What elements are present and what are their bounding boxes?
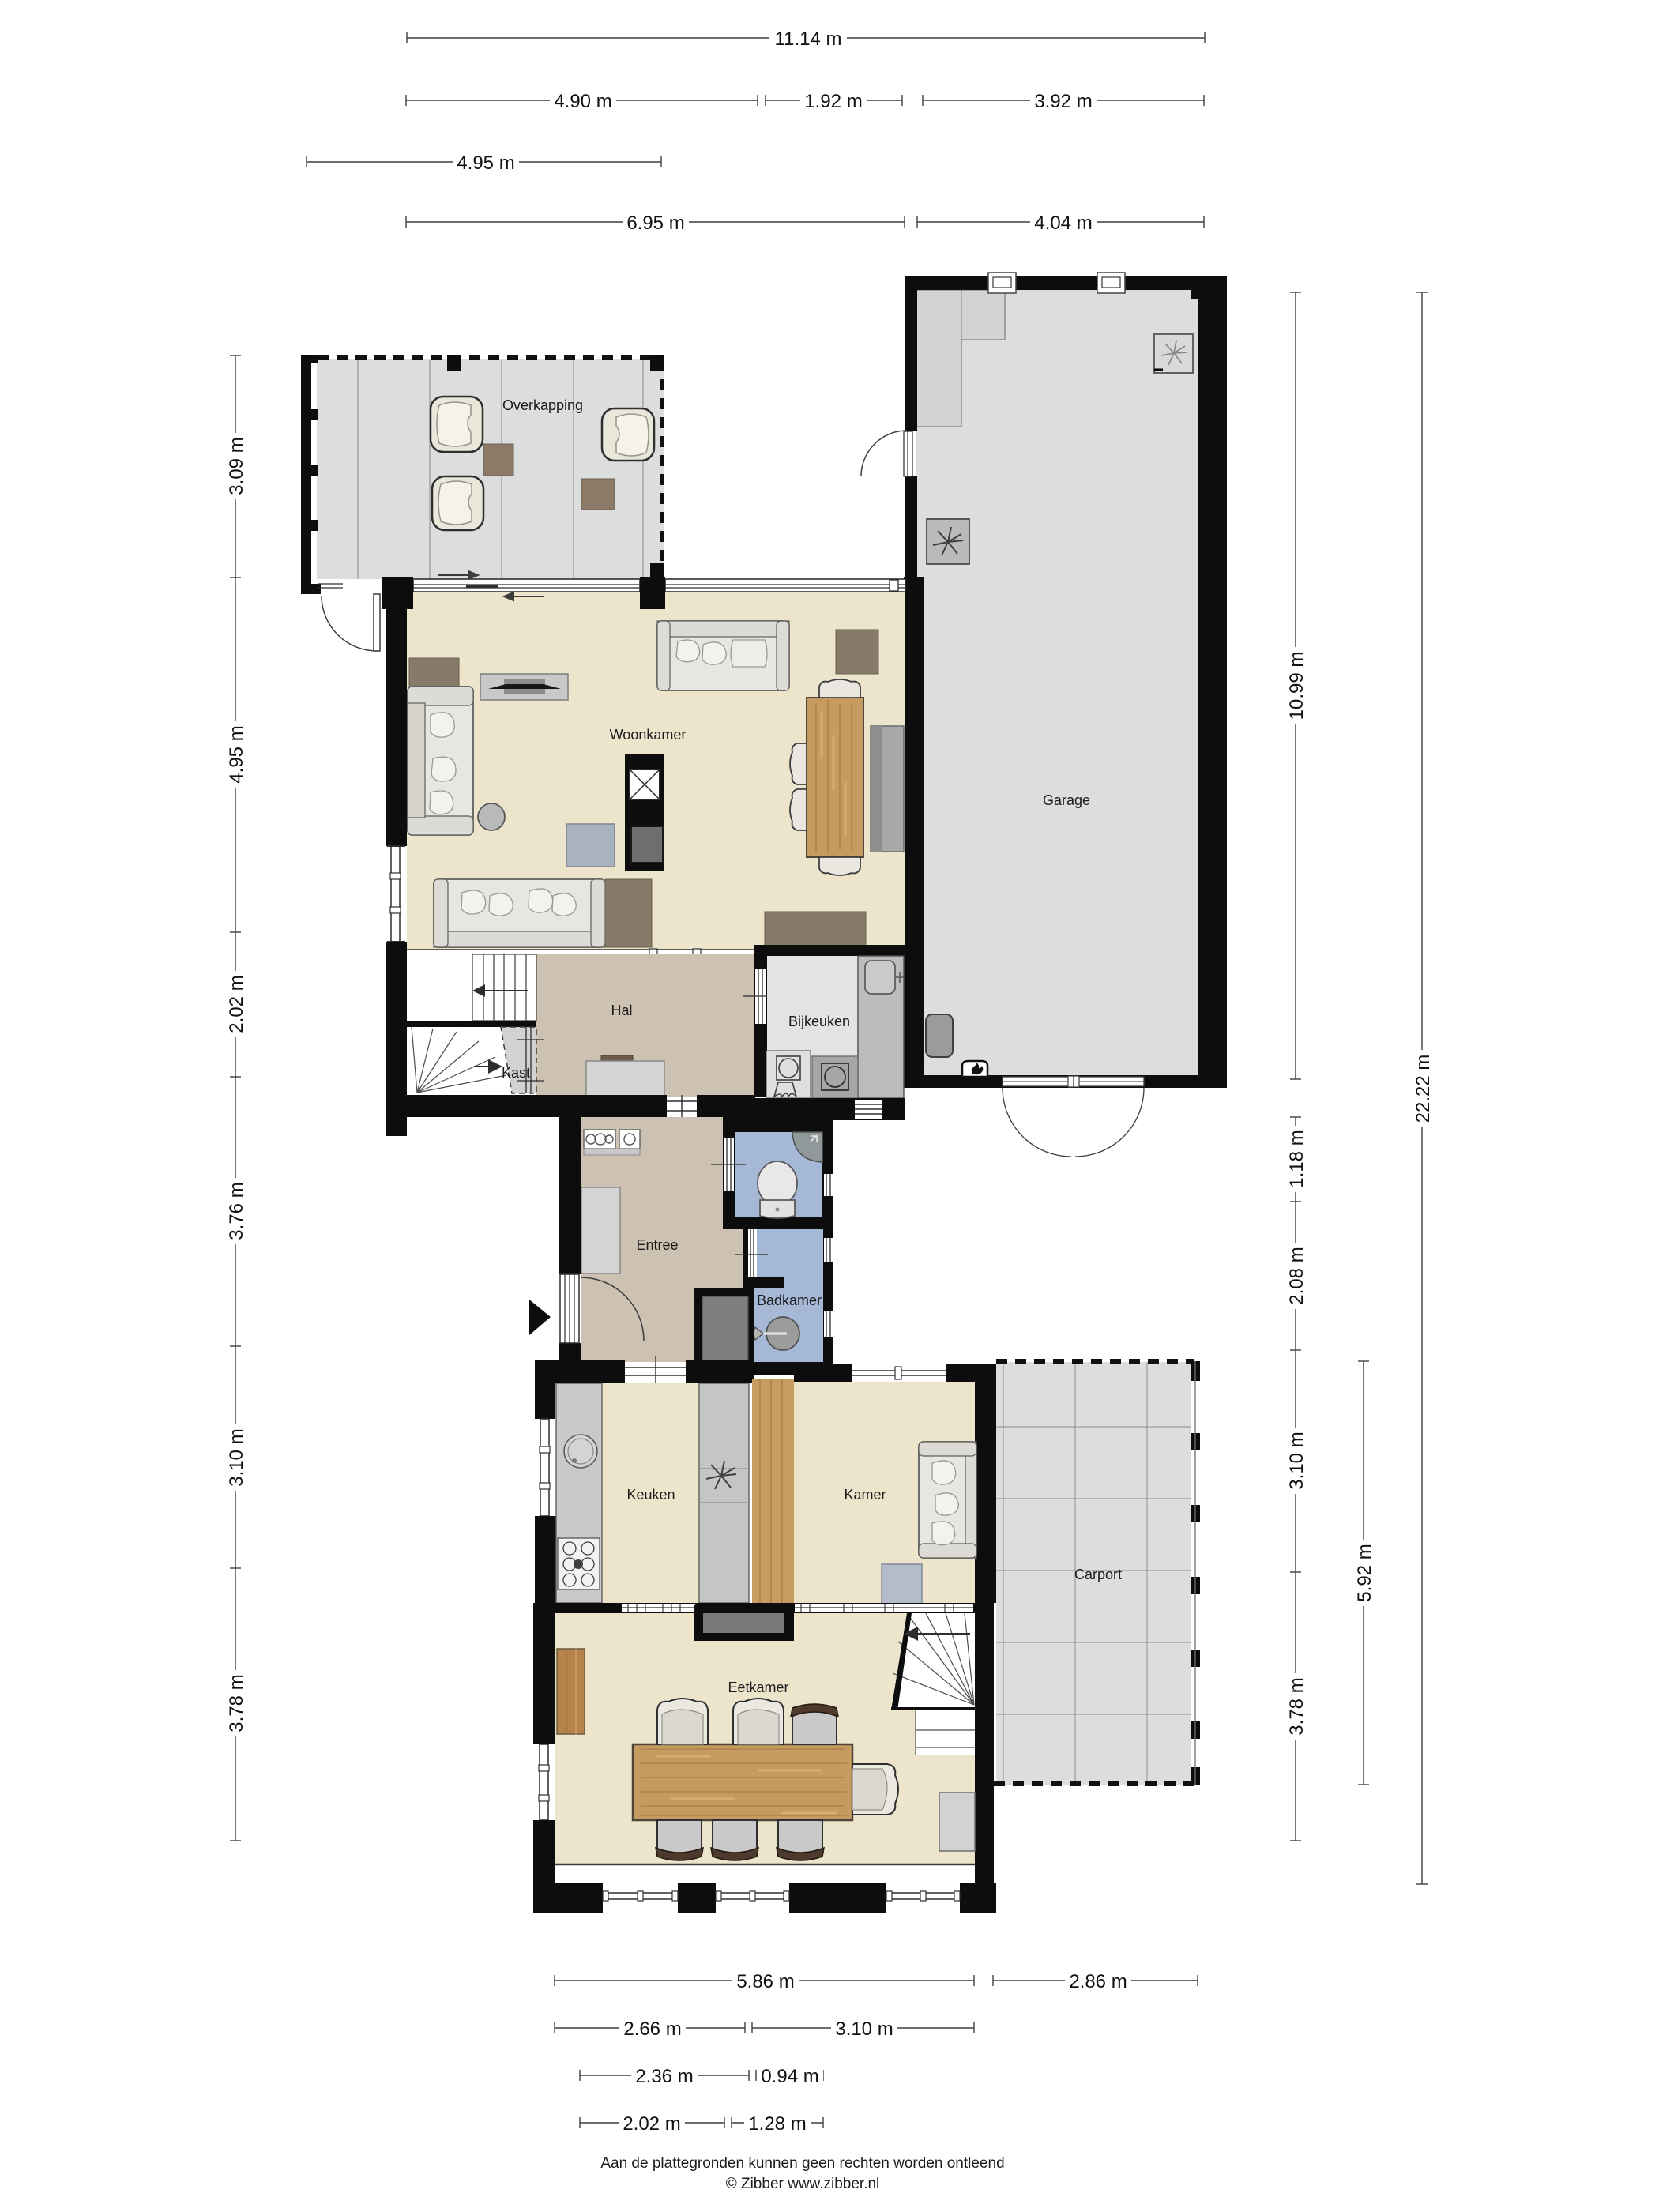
svg-text:3.78 m: 3.78 m: [1286, 1677, 1307, 1735]
svg-text:11.14 m: 11.14 m: [775, 28, 842, 50]
svg-text:Keuken: Keuken: [626, 1487, 675, 1503]
svg-text:10.99 m: 10.99 m: [1286, 652, 1307, 720]
svg-text:2.08 m: 2.08 m: [1286, 1247, 1307, 1304]
svg-text:Woonkamer: Woonkamer: [610, 727, 687, 743]
svg-text:© Zibber www.zibber.nl: © Zibber www.zibber.nl: [726, 2176, 880, 2192]
svg-text:4.90 m: 4.90 m: [554, 91, 611, 112]
svg-text:Aan de plattegronden kunnen ge: Aan de plattegronden kunnen geen rechten…: [600, 2155, 1004, 2172]
svg-text:22.22 m: 22.22 m: [1413, 1055, 1434, 1123]
svg-text:3.92 m: 3.92 m: [1034, 91, 1092, 112]
svg-text:Bijkeuken: Bijkeuken: [788, 1014, 850, 1029]
svg-text:Carport: Carport: [1074, 1567, 1122, 1582]
svg-text:3.10 m: 3.10 m: [226, 1428, 247, 1486]
svg-text:3.09 m: 3.09 m: [226, 437, 247, 495]
svg-text:5.92 m: 5.92 m: [1354, 1544, 1375, 1601]
svg-text:1.28 m: 1.28 m: [748, 2113, 806, 2135]
svg-text:2.02 m: 2.02 m: [226, 975, 247, 1033]
svg-text:6.95 m: 6.95 m: [626, 213, 684, 234]
svg-text:3.10 m: 3.10 m: [1286, 1431, 1307, 1489]
svg-text:Entree: Entree: [636, 1237, 678, 1253]
svg-text:1.18 m: 1.18 m: [1286, 1130, 1307, 1187]
svg-text:0.94 m: 0.94 m: [761, 2066, 818, 2087]
svg-text:Overkapping: Overkapping: [502, 397, 583, 413]
svg-text:2.86 m: 2.86 m: [1069, 1971, 1127, 1992]
svg-text:Badkamer: Badkamer: [757, 1292, 822, 1308]
svg-text:1.92 m: 1.92 m: [804, 91, 862, 112]
svg-text:3.10 m: 3.10 m: [835, 2018, 893, 2040]
svg-text:4.95 m: 4.95 m: [457, 152, 514, 174]
svg-text:2.66 m: 2.66 m: [623, 2018, 681, 2040]
svg-text:Kamer: Kamer: [844, 1487, 886, 1503]
svg-text:2.36 m: 2.36 m: [635, 2066, 693, 2087]
svg-text:5.86 m: 5.86 m: [736, 1971, 794, 1992]
svg-text:Kast: Kast: [502, 1065, 530, 1081]
svg-text:4.95 m: 4.95 m: [226, 725, 247, 783]
svg-text:4.04 m: 4.04 m: [1034, 213, 1092, 234]
svg-text:3.76 m: 3.76 m: [226, 1182, 247, 1240]
svg-text:3.78 m: 3.78 m: [226, 1674, 247, 1732]
svg-text:Eetkamer: Eetkamer: [728, 1680, 788, 1695]
svg-text:2.02 m: 2.02 m: [623, 2113, 680, 2135]
svg-text:Hal: Hal: [611, 1003, 632, 1018]
svg-text:Garage: Garage: [1043, 792, 1090, 808]
